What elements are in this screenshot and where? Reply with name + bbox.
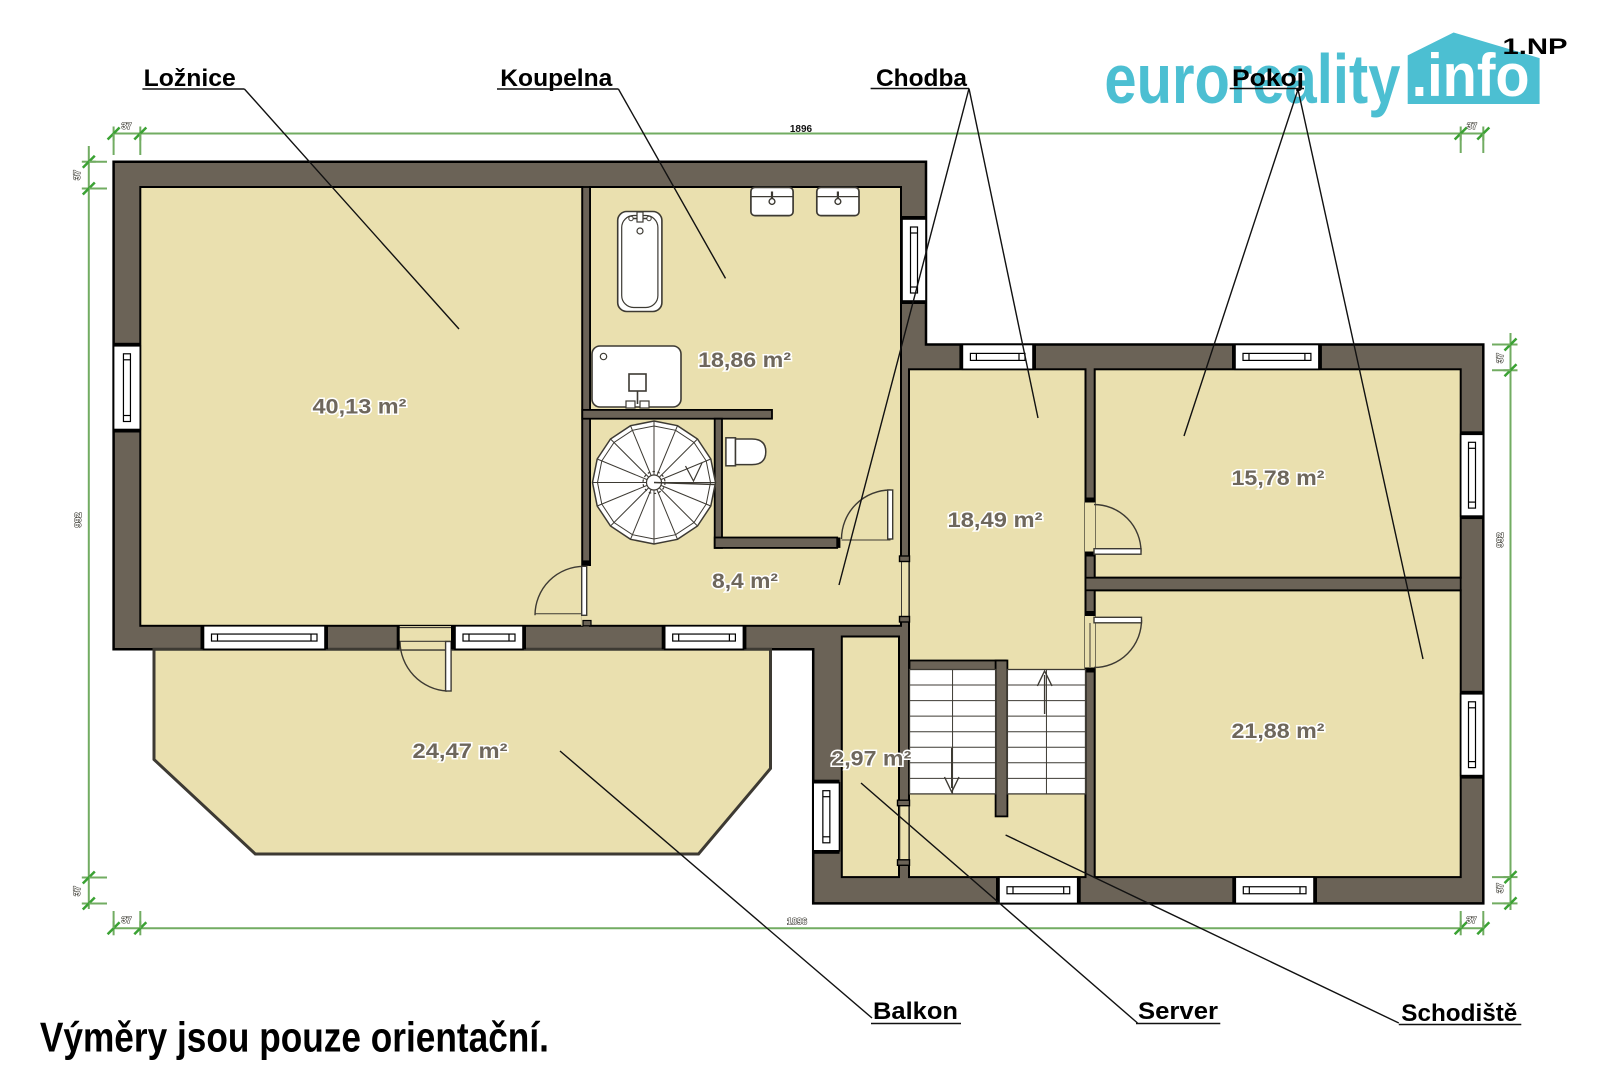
svg-text:15,78 m²: 15,78 m² [1232, 467, 1325, 490]
svg-text:37: 37 [72, 886, 82, 896]
svg-text:37: 37 [121, 915, 131, 925]
svg-text:Výměry jsou pouze orientační.: Výměry jsou pouze orientační. [40, 1014, 549, 1061]
svg-text:Koupelna: Koupelna [500, 65, 613, 92]
svg-text:Ložnice: Ložnice [144, 65, 236, 92]
svg-text:37: 37 [1466, 915, 1476, 925]
svg-text:37: 37 [1467, 121, 1477, 131]
svg-text:Balkon: Balkon [873, 998, 958, 1025]
svg-text:8,4 m²: 8,4 m² [712, 570, 778, 593]
svg-text:Server: Server [1138, 998, 1218, 1025]
svg-text:2,97 m²: 2,97 m² [831, 747, 911, 770]
svg-text:40,13 m²: 40,13 m² [313, 396, 407, 419]
svg-text:24,47 m²: 24,47 m² [413, 740, 508, 763]
svg-text:21,88 m²: 21,88 m² [1232, 720, 1325, 743]
svg-text:37: 37 [1495, 883, 1505, 893]
svg-text:992: 992 [1495, 532, 1505, 547]
svg-text:37: 37 [121, 121, 131, 131]
svg-text:1.NP: 1.NP [1503, 34, 1568, 59]
svg-text:37: 37 [1495, 353, 1505, 363]
svg-text:1896: 1896 [790, 124, 813, 135]
svg-text:18,86 m²: 18,86 m² [698, 349, 791, 372]
svg-text:1896: 1896 [787, 917, 807, 927]
svg-text:37: 37 [72, 170, 82, 180]
svg-text:18,49 m²: 18,49 m² [948, 509, 1043, 532]
svg-text:992: 992 [73, 512, 83, 527]
svg-text:Schodiště: Schodiště [1401, 1000, 1517, 1027]
